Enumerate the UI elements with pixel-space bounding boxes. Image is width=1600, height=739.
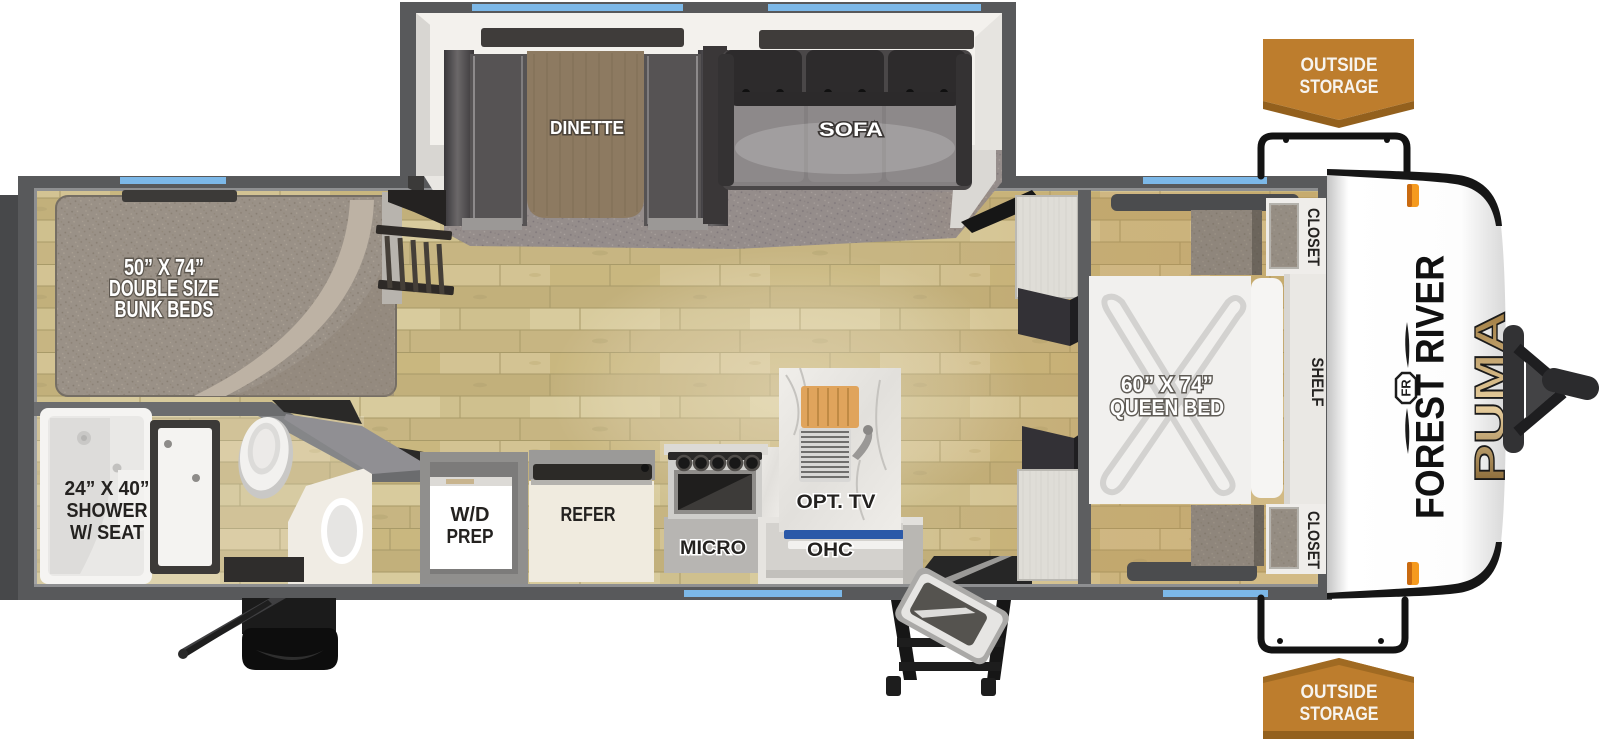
- svg-text:SHELF: SHELF: [1308, 358, 1327, 407]
- svg-text:CLOSET: CLOSET: [1304, 208, 1323, 267]
- svg-text:24” X 40”: 24” X 40”: [65, 478, 150, 500]
- svg-text:OPT. TV: OPT. TV: [797, 492, 876, 513]
- svg-text:OHC: OHC: [807, 540, 853, 561]
- svg-text:FOREST RIVER: FOREST RIVER: [1409, 255, 1453, 519]
- svg-text:REFER: REFER: [561, 504, 616, 526]
- svg-text:QUEEN BED: QUEEN BED: [1110, 395, 1224, 420]
- svg-text:BUNK BEDS: BUNK BEDS: [115, 296, 214, 322]
- svg-text:DINETTE: DINETTE: [550, 118, 624, 138]
- svg-text:60” X 74”: 60” X 74”: [1121, 372, 1213, 397]
- svg-text:OUTSIDE: OUTSIDE: [1301, 682, 1378, 703]
- svg-text:SOFA: SOFA: [819, 120, 883, 141]
- svg-text:W/D: W/D: [451, 504, 490, 526]
- svg-text:MICRO: MICRO: [680, 538, 746, 559]
- svg-text:OUTSIDE: OUTSIDE: [1301, 55, 1378, 76]
- svg-text:CLOSET: CLOSET: [1304, 511, 1323, 570]
- svg-text:STORAGE: STORAGE: [1300, 77, 1379, 98]
- svg-text:W/ SEAT: W/ SEAT: [70, 522, 144, 544]
- svg-text:SHOWER: SHOWER: [67, 500, 149, 522]
- svg-text:PREP: PREP: [447, 526, 494, 548]
- svg-text:STORAGE: STORAGE: [1300, 704, 1379, 725]
